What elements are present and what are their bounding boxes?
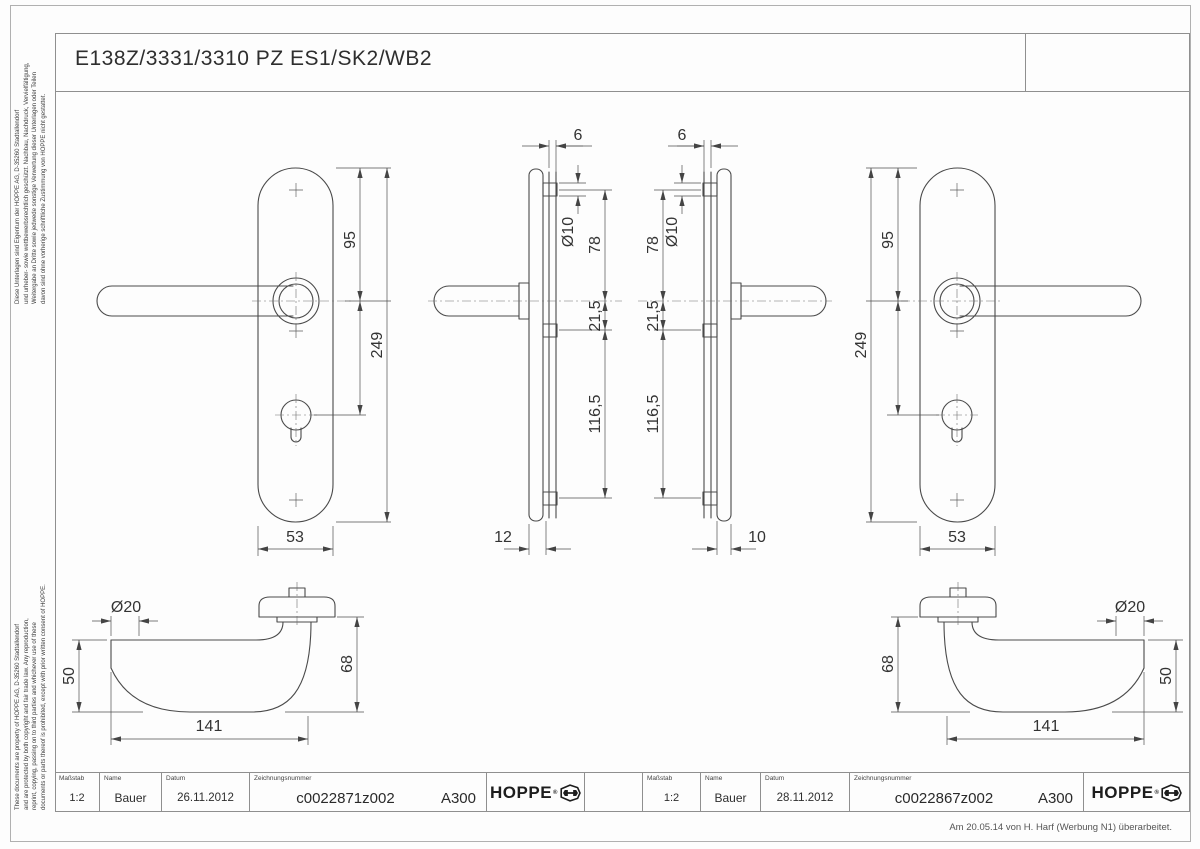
drawing-number-cell-left: Zeichnungsnummer c0022871z002 A300 <box>250 773 487 812</box>
screw-boss <box>703 183 717 196</box>
dim-label: 141 <box>1033 718 1060 735</box>
name-value: Bauer <box>100 784 161 812</box>
dim-label: 10 <box>748 529 766 546</box>
side-view-left: 6 Ø10 78 21,5 116,5 12 <box>428 127 622 555</box>
lever-detail-left: Ø20 50 68 141 <box>61 582 364 745</box>
dim-label: 12 <box>494 529 512 546</box>
dim-label: 50 <box>1158 667 1175 685</box>
screw-boss <box>703 492 717 505</box>
center-mark <box>289 183 303 197</box>
screw-boss <box>703 324 717 337</box>
drawing-number-value: c0022867z002 <box>850 790 1038 807</box>
front-view-right: 95 249 53 <box>853 168 1141 556</box>
drawing-code: A300 <box>1038 790 1083 807</box>
technical-drawing-canvas: 95 249 53 6 Ø10 78 21,5 116,5 <box>0 0 1200 849</box>
extension-lines <box>72 640 143 712</box>
spacer-cell <box>585 773 643 812</box>
dim-label: 68 <box>339 655 356 673</box>
dim-label: 249 <box>853 332 870 359</box>
grip-inner-contour <box>111 622 283 640</box>
extension-lines <box>704 140 711 178</box>
backplate-profile <box>529 169 543 521</box>
name-label: Name <box>100 773 161 784</box>
extension-lines <box>891 617 970 712</box>
grip-outer-contour <box>944 622 1144 712</box>
mounting-column <box>704 172 711 518</box>
name-label: Name <box>701 773 760 784</box>
date-value: 26.11.2012 <box>162 784 249 812</box>
registered-mark: ® <box>1155 790 1160 796</box>
drawing-number-label: Zeichnungsnummer <box>850 773 1083 784</box>
center-mark <box>950 183 964 197</box>
dim-label: 6 <box>678 127 687 144</box>
dim-label: Ø10 <box>664 217 681 247</box>
center-mark <box>289 493 303 507</box>
dim-label: 95 <box>342 231 359 249</box>
technical-drawing-sheet: { "page": { "title": "E138Z/3331/3310 PZ… <box>0 0 1200 849</box>
dim-label: 249 <box>369 332 386 359</box>
lever-detail-right: Ø20 50 68 141 <box>880 582 1183 745</box>
hoppe-logo-icon <box>560 784 581 802</box>
scale-cell-right: Maßstab 1:2 <box>643 773 701 812</box>
drawing-number-value: c0022871z002 <box>250 790 441 807</box>
extension-lines <box>1116 616 1144 636</box>
date-label: Datum <box>761 773 849 784</box>
dim-label: 6 <box>574 127 583 144</box>
grip-outer-contour <box>111 622 311 712</box>
revision-note: Am 20.05.14 von H. Harf (Werbung N1) übe… <box>949 822 1172 833</box>
dim-label: 78 <box>587 236 604 254</box>
dim-label: 68 <box>880 655 897 673</box>
brand-cell-left: HOPPE® <box>487 773 585 812</box>
backplate-outline <box>258 168 333 522</box>
front-view-left: 95 249 53 <box>97 168 391 556</box>
center-mark <box>950 493 964 507</box>
scale-cell-left: Maßstab 1:2 <box>55 773 100 812</box>
date-cell-right: Datum 28.11.2012 <box>761 773 850 812</box>
dim-label: 78 <box>645 236 662 254</box>
backplate-outline <box>920 168 995 522</box>
extension-lines <box>559 183 586 196</box>
drawing-number-cell-right: Zeichnungsnummer c0022867z002 A300 <box>850 773 1084 812</box>
brand-wordmark: HOPPE <box>490 783 552 803</box>
dim-label: 53 <box>948 529 966 546</box>
brand-wordmark: HOPPE <box>1092 783 1154 803</box>
dim-label: 50 <box>61 667 78 685</box>
drawing-number-label: Zeichnungsnummer <box>250 773 486 784</box>
scale-label: Maßstab <box>55 773 99 784</box>
name-value: Bauer <box>701 784 760 812</box>
screw-boss <box>543 183 557 196</box>
backplate-profile <box>717 169 731 521</box>
extension-lines <box>866 168 939 522</box>
drawing-code: A300 <box>441 790 486 807</box>
dim-label: Ø20 <box>111 599 141 616</box>
dim-label: 95 <box>880 231 897 249</box>
extension-lines <box>529 521 546 555</box>
mounting-column <box>549 172 556 518</box>
lever-grip <box>97 286 293 316</box>
extension-lines <box>111 616 139 636</box>
name-cell-left: Name Bauer <box>100 773 162 812</box>
side-view-right: 6 Ø10 78 21,5 116,5 10 <box>638 127 832 555</box>
dim-label: 116,5 <box>645 394 662 433</box>
screw-boss <box>543 492 557 505</box>
dim-label: Ø20 <box>1115 599 1145 616</box>
name-cell-right: Name Bauer <box>701 773 761 812</box>
date-value: 28.11.2012 <box>761 784 849 812</box>
dim-label: 53 <box>286 529 304 546</box>
date-label: Datum <box>162 773 249 784</box>
extension-lines <box>674 183 701 196</box>
dim-label: 21,5 <box>587 300 604 331</box>
dim-label: 141 <box>196 718 223 735</box>
extension-lines <box>549 140 556 178</box>
registered-mark: ® <box>553 790 558 796</box>
dim-label: 116,5 <box>587 394 604 433</box>
scale-value: 1:2 <box>55 784 99 812</box>
hoppe-logo-icon <box>1161 784 1182 802</box>
brand-cell-right: HOPPE® <box>1084 773 1190 812</box>
screw-boss <box>543 324 557 337</box>
scale-label: Maßstab <box>643 773 700 784</box>
scale-value: 1:2 <box>643 784 700 812</box>
dim-label: 21,5 <box>645 300 662 331</box>
dim-label: Ø10 <box>560 217 577 247</box>
date-cell-left: Datum 26.11.2012 <box>162 773 250 812</box>
extension-lines <box>717 521 731 555</box>
title-block-row: Maßstab 1:2 Name Bauer Datum 26.11.2012 … <box>55 772 1190 812</box>
grip-inner-contour <box>972 622 1144 640</box>
